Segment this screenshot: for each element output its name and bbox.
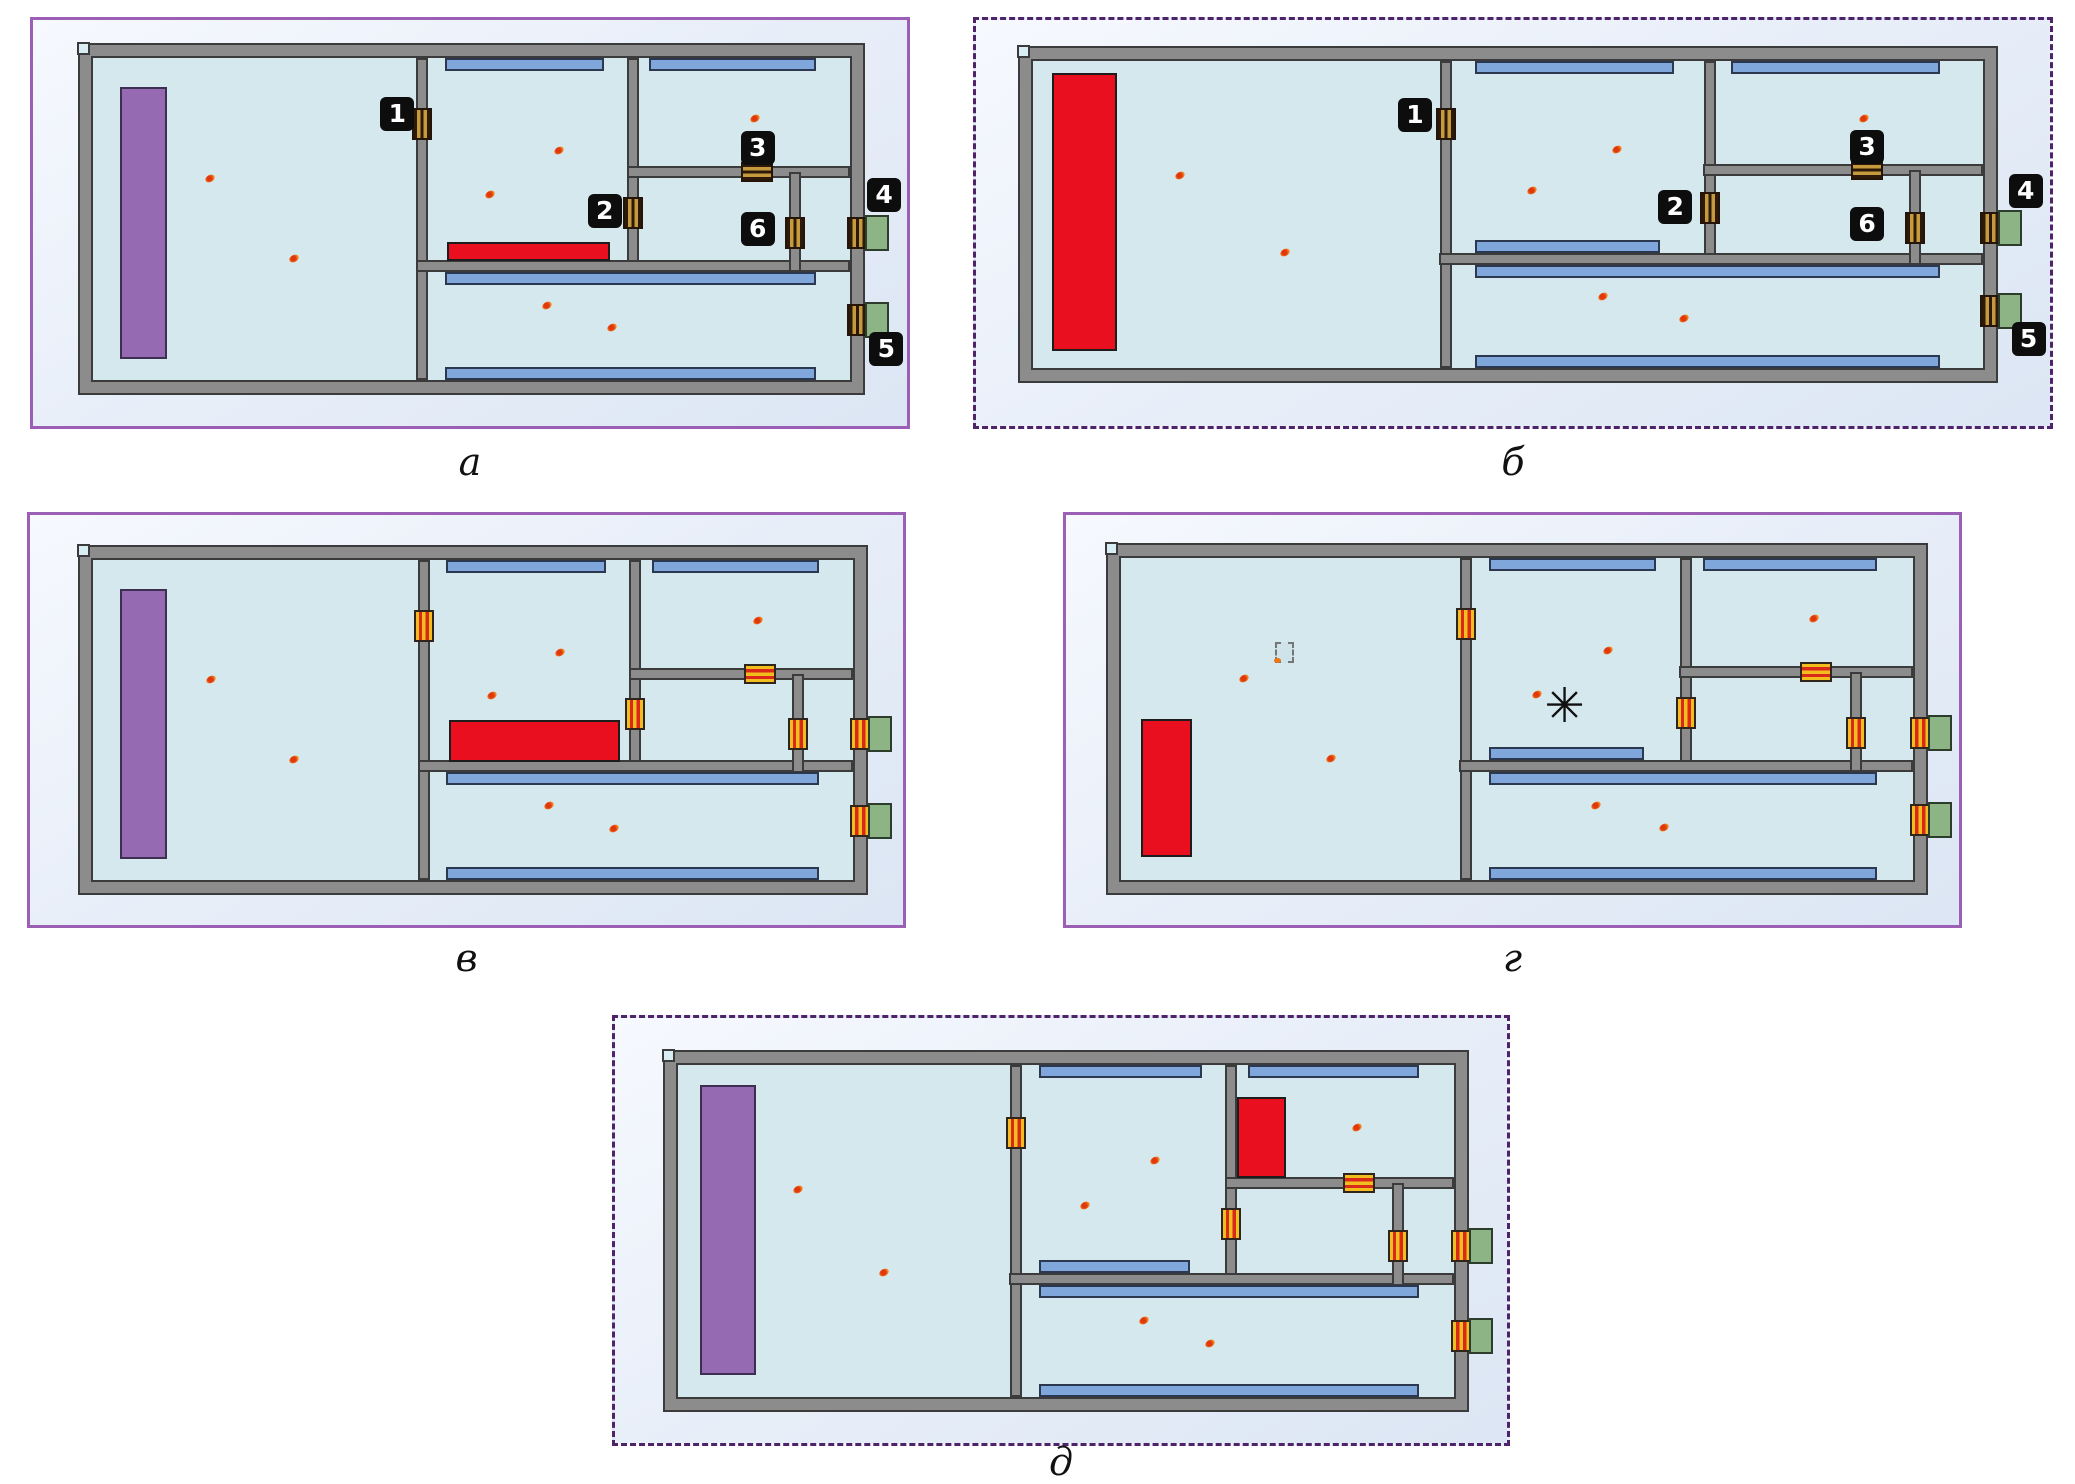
inner-wall-2 [627, 58, 639, 272]
window [446, 560, 606, 573]
window [1731, 61, 1940, 74]
door-icon [625, 698, 645, 730]
occupant-dot-icon [541, 300, 553, 311]
room-number-badge-1: 1 [380, 97, 414, 131]
dashed-marker-icon [1275, 642, 1294, 663]
occupant-dot-icon [878, 1266, 890, 1277]
panel-caption-г: г [1063, 936, 1962, 980]
occupant-dot-icon [1203, 1338, 1215, 1349]
fire-source-rect [447, 242, 610, 261]
fire-source-rect [1141, 719, 1192, 857]
door-icon [1676, 697, 1696, 729]
inner-wall-3 [418, 760, 853, 772]
window [649, 58, 816, 71]
occupant-dot-icon [1238, 673, 1250, 684]
floor-plan-panel-д [612, 1015, 1510, 1446]
window [1489, 772, 1877, 785]
inner-wall-3 [1009, 1273, 1454, 1285]
door-icon [1700, 192, 1720, 224]
occupant-dot-icon [204, 173, 216, 184]
door-icon [741, 162, 773, 182]
inner-wall-4 [1679, 666, 1913, 678]
window [652, 560, 819, 573]
stage-rect [120, 589, 167, 859]
window [1039, 1065, 1202, 1078]
occupant-dot-icon [1858, 113, 1870, 124]
door-icon [1800, 662, 1832, 682]
panel-caption-б: б [973, 440, 2053, 484]
room-number-badge-4: 4 [867, 178, 901, 212]
window [446, 867, 818, 880]
exit-icon [1998, 210, 2022, 246]
occupant-dot-icon [1602, 645, 1614, 656]
door-icon [1388, 1230, 1408, 1262]
door-icon [1343, 1173, 1375, 1193]
occupant-dot-icon [1531, 689, 1543, 700]
inner-wall-3 [1439, 253, 1983, 265]
stage-rect [120, 87, 167, 359]
occupant-dot-icon [1351, 1122, 1363, 1133]
room-number-badge-6: 6 [741, 212, 775, 246]
occupant-dot-icon [605, 322, 617, 333]
room-number-badge-4: 4 [2009, 174, 2043, 208]
window [1475, 355, 1941, 368]
door-icon [788, 718, 808, 750]
door-icon [1456, 608, 1476, 640]
occupant-dot-icon [1325, 753, 1337, 764]
inner-wall-4 [1703, 164, 1983, 176]
occupant-dot-icon [1174, 170, 1186, 181]
window [1489, 747, 1643, 760]
fire-source-rect [1237, 1097, 1286, 1178]
door-icon [414, 610, 434, 642]
occupant-dot-icon [288, 253, 300, 264]
room-number-badge-2: 2 [588, 194, 622, 228]
building-outline: ✳ [1106, 543, 1928, 895]
corner-marker-icon [662, 1049, 675, 1062]
occupant-dot-icon [1657, 822, 1669, 833]
occupant-dot-icon [205, 674, 217, 685]
corner-marker-icon [77, 544, 90, 557]
window [1489, 558, 1655, 571]
room-number-badge-3: 3 [1850, 130, 1884, 164]
occupant-dot-icon [1590, 800, 1602, 811]
occupant-dot-icon [486, 690, 498, 701]
window [1039, 1285, 1419, 1298]
inner-wall-2 [1225, 1065, 1237, 1286]
room-number-badge-1: 1 [1398, 98, 1432, 132]
inner-wall-3 [1459, 760, 1913, 772]
inner-wall-1 [416, 58, 428, 380]
occupant-dot-icon [1279, 247, 1291, 258]
occupant-dot-icon [288, 754, 300, 765]
occupant-dot-icon [484, 189, 496, 200]
window [1703, 558, 1877, 571]
room-number-badge-5: 5 [869, 332, 903, 366]
building-outline [663, 1050, 1469, 1412]
window [445, 367, 816, 380]
fire-source-rect [1052, 73, 1117, 351]
room-number-badge-5: 5 [2012, 322, 2046, 356]
panel-caption-в: в [27, 936, 906, 980]
building-interior [676, 1063, 1456, 1399]
exit-icon [1928, 715, 1952, 751]
building-outline: 123456 [78, 43, 865, 395]
floor-plan-panel-в [27, 512, 906, 928]
corner-marker-icon [1017, 45, 1030, 58]
window [446, 772, 818, 785]
building-interior: 123456 [91, 56, 852, 382]
window [1489, 867, 1877, 880]
inner-wall-1 [1010, 1065, 1022, 1397]
occupant-dot-icon [792, 1183, 804, 1194]
figure-evacuation-plans: 123456а123456бв✳гд [0, 0, 2075, 1469]
door-icon [785, 217, 805, 249]
occupant-dot-icon [1079, 1200, 1091, 1211]
window [1475, 265, 1941, 278]
building-interior [91, 558, 855, 882]
inner-wall-4 [629, 668, 853, 680]
occupant-dot-icon [543, 800, 555, 811]
occupant-dot-icon [1808, 613, 1820, 624]
door-icon [412, 108, 432, 140]
door-icon [1006, 1117, 1026, 1149]
exit-icon [1469, 1228, 1493, 1264]
building-outline [78, 545, 868, 895]
room-number-badge-6: 6 [1850, 207, 1884, 241]
ignition-asterisk-icon: ✳ [1544, 682, 1584, 730]
exit-icon [1469, 1318, 1493, 1354]
occupant-dot-icon [1138, 1315, 1150, 1326]
room-number-badge-3: 3 [741, 131, 775, 165]
occupant-dot-icon [552, 145, 564, 156]
building-outline: 123456 [1018, 46, 1998, 383]
occupant-dot-icon [749, 113, 761, 124]
window [445, 272, 816, 285]
stage-rect [700, 1085, 756, 1376]
inner-wall-4 [627, 166, 850, 178]
floor-plan-panel-б: 123456 [973, 17, 2053, 429]
exit-icon [868, 716, 892, 752]
inner-wall-3 [416, 260, 850, 272]
occupant-dot-icon [1678, 313, 1690, 324]
door-icon [1221, 1208, 1241, 1240]
occupant-dot-icon [608, 823, 620, 834]
window [445, 58, 604, 71]
window [1475, 240, 1660, 253]
room-number-badge-2: 2 [1658, 190, 1692, 224]
fire-source-rect [449, 720, 620, 762]
inner-wall-2 [629, 560, 641, 773]
floor-plan-panel-а: 123456 [30, 17, 910, 429]
building-interior: ✳ [1119, 556, 1915, 882]
inner-wall-2 [1680, 558, 1692, 772]
door-icon [1436, 108, 1456, 140]
window [1248, 1065, 1419, 1078]
corner-marker-icon [1105, 542, 1118, 555]
window [1475, 61, 1675, 74]
door-icon [1846, 717, 1866, 749]
exit-icon [1928, 802, 1952, 838]
occupant-dot-icon [554, 647, 566, 658]
occupant-dot-icon [1611, 144, 1623, 155]
floor-plan-panel-г: ✳ [1063, 512, 1962, 928]
door-icon [744, 664, 776, 684]
occupant-dot-icon [752, 615, 764, 626]
panel-caption-д: д [612, 1440, 1510, 1484]
corner-marker-icon [77, 42, 90, 55]
door-icon [1905, 212, 1925, 244]
window [1039, 1260, 1190, 1273]
occupant-dot-icon [1597, 291, 1609, 302]
window [1039, 1384, 1419, 1397]
exit-icon [868, 803, 892, 839]
building-interior: 123456 [1031, 59, 1985, 370]
inner-wall-4 [1225, 1177, 1454, 1189]
occupant-dot-icon [1526, 185, 1538, 196]
exit-icon [865, 215, 889, 251]
spark-dot-icon [1274, 658, 1281, 663]
door-icon [623, 197, 643, 229]
inner-wall-1 [1460, 558, 1472, 880]
inner-wall-1 [418, 560, 430, 880]
occupant-dot-icon [1149, 1155, 1161, 1166]
panel-caption-а: а [30, 440, 910, 484]
